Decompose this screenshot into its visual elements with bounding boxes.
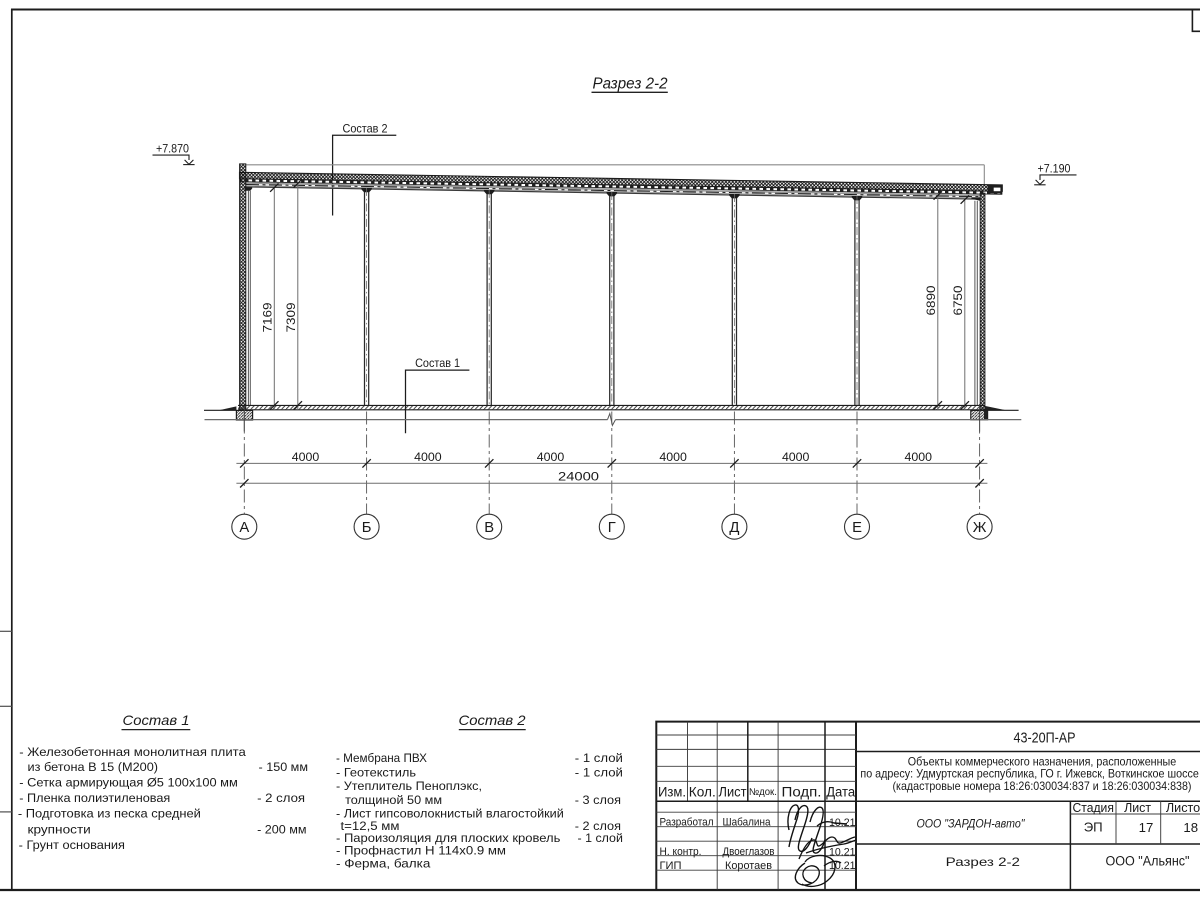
svg-text:№док.: №док. [749, 787, 777, 798]
svg-text:4000: 4000 [292, 450, 320, 464]
svg-text:6750: 6750 [951, 285, 965, 315]
svg-text:- Геотекстиль: - Геотекстиль [336, 765, 416, 779]
svg-text:Состав 2: Состав 2 [459, 713, 526, 728]
svg-text:18: 18 [1183, 820, 1198, 835]
svg-text:- 200 мм: - 200 мм [257, 822, 307, 836]
svg-text:Разрез 2-2: Разрез 2-2 [593, 76, 668, 93]
svg-text:из бетона В 15 (М200): из бетона В 15 (М200) [28, 760, 159, 774]
svg-text:А: А [239, 520, 249, 536]
svg-text:10.21: 10.21 [829, 846, 856, 858]
svg-text:крупности: крупности [28, 822, 91, 836]
svg-text:+7.870: +7.870 [156, 142, 189, 156]
svg-text:- 1 слой: - 1 слой [575, 751, 623, 765]
svg-text:(кадастровые номера 18:26:0300: (кадастровые номера 18:26:030034:837 и 1… [893, 780, 1192, 793]
svg-text:по адресу: Удмуртская республи: по адресу: Удмуртская республика, ГО г. … [860, 767, 1198, 780]
svg-text:Дата: Дата [826, 785, 855, 801]
svg-text:4000: 4000 [782, 450, 810, 464]
svg-text:Изм.: Изм. [658, 785, 686, 801]
svg-text:Е: Е [852, 520, 862, 536]
svg-text:ООО "Альянс": ООО "Альянс" [1106, 853, 1190, 868]
svg-text:- Железобетонная монолитная п: - Железобетонная монолитная плита [19, 745, 246, 759]
svg-text:Разрез 2-2: Разрез 2-2 [946, 855, 1021, 869]
svg-text:- Ферма, балка: - Ферма, балка [336, 856, 431, 870]
svg-text:ЭП: ЭП [1084, 820, 1103, 835]
svg-text:Состав 2: Состав 2 [343, 122, 388, 135]
svg-text:- 1 слой: - 1 слой [575, 765, 623, 779]
svg-text:Б: Б [362, 520, 372, 536]
svg-text:Ж: Ж [973, 520, 987, 536]
svg-text:- 150 мм: - 150 мм [259, 760, 309, 774]
svg-text:24000: 24000 [558, 470, 599, 484]
svg-text:4000: 4000 [414, 450, 442, 464]
svg-text:Стадия: Стадия [1073, 801, 1114, 815]
svg-text:4000: 4000 [905, 450, 933, 464]
svg-text:4000: 4000 [537, 450, 565, 464]
svg-text:Лист: Лист [1124, 801, 1151, 815]
svg-text:Двоеглазов: Двоеглазов [723, 846, 775, 858]
svg-text:17: 17 [1139, 820, 1154, 835]
svg-text:Кол.: Кол. [689, 785, 716, 801]
svg-text:Листов: Листов [1166, 801, 1200, 815]
svg-text:Г: Г [608, 520, 616, 536]
svg-text:- 1 слой: - 1 слой [578, 831, 623, 845]
svg-text:Объекты коммерческого назначен: Объекты коммерческого назначения, распол… [908, 755, 1177, 768]
svg-text:Подп.: Подп. [782, 785, 822, 801]
svg-text:- 2 слоя: - 2 слоя [257, 791, 305, 805]
svg-text:Шабалина: Шабалина [723, 817, 771, 829]
svg-text:4000: 4000 [659, 450, 687, 464]
svg-text:7309: 7309 [284, 302, 298, 332]
svg-text:ГИП: ГИП [660, 860, 682, 872]
svg-text:- Грунт основания: - Грунт основания [19, 838, 125, 852]
svg-text:В: В [484, 520, 494, 536]
svg-text:Лист: Лист [719, 785, 747, 801]
svg-text:- Утеплитель Пеноплэкс,: - Утеплитель Пеноплэкс, [336, 779, 482, 793]
svg-text:+7.190: +7.190 [1038, 161, 1071, 175]
svg-text:толщиной 50 мм: толщиной 50 мм [345, 793, 442, 807]
svg-text:- 3 слоя: - 3 слоя [575, 793, 621, 807]
svg-text:6890: 6890 [924, 285, 938, 315]
svg-text:Состав 1: Состав 1 [123, 713, 190, 728]
svg-text:- Подготовка из песка средней: - Подготовка из песка средней [18, 807, 201, 821]
svg-text:- Сетка армирующая Ø5 100х100: - Сетка армирующая Ø5 100х100 мм [19, 776, 238, 790]
svg-text:Разработал: Разработал [660, 817, 714, 829]
svg-text:43-20П-АР: 43-20П-АР [1014, 730, 1076, 746]
svg-text:- Мембрана ПВХ: - Мембрана ПВХ [336, 751, 427, 765]
svg-text:Состав 1: Состав 1 [415, 357, 460, 370]
svg-text:ООО "ЗАРДОН-авто": ООО "ЗАРДОН-авто" [917, 816, 1026, 830]
svg-text:Д: Д [729, 520, 739, 536]
svg-text:Н. контр.: Н. контр. [660, 846, 702, 858]
svg-text:7169: 7169 [261, 302, 275, 332]
svg-text:- Пленка полиэтиленовая: - Пленка полиэтиленовая [19, 791, 170, 805]
svg-text:Коротаев: Коротаев [725, 860, 772, 872]
